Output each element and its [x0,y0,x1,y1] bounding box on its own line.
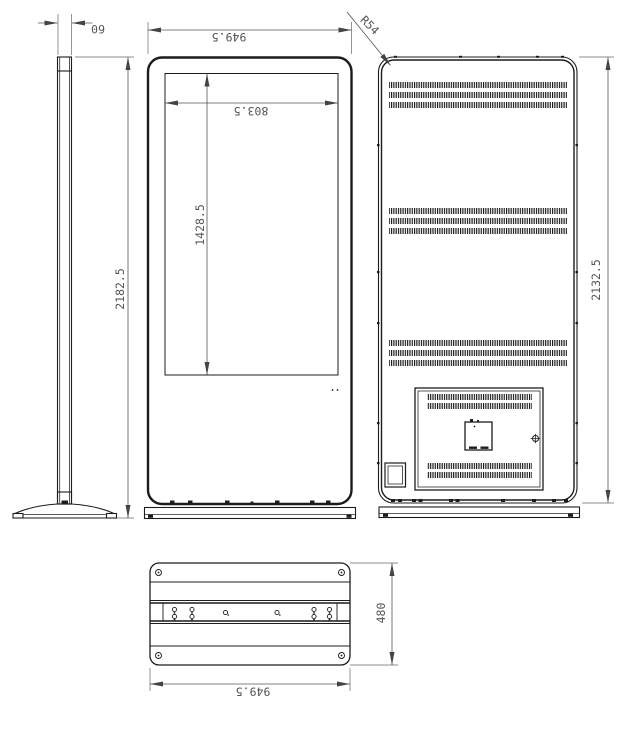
power-inlet [385,463,406,487]
dim-back-radius: R54 [347,12,391,66]
dim-screen-width-label: 803.5 [234,104,269,118]
front-base-plate [145,508,356,519]
vent-grille-top [389,82,567,108]
front-view: 949.5 803.5 1428.5 [145,22,356,519]
dim-base-width: 949.5 [150,668,350,699]
dim-base-depth: 480 [350,563,398,665]
access-panel [415,388,543,490]
channel-bolt-holes [172,607,331,620]
base-plate-lines [150,582,350,646]
sensor-dots [332,389,339,391]
back-view: R54 2132.5 [347,12,614,518]
bottom-view: 480 949.5 [150,563,398,699]
pole [58,57,72,504]
back-body-outer [379,57,578,503]
panel-junction-box [465,419,492,450]
vent-grille-lower [389,340,567,366]
dim-screen-width: 803.5 [165,103,338,118]
dim-side-height: 2182.5 [75,57,134,518]
dim-screen-height: 1428.5 [193,74,207,376]
dim-front-width-label: 949.5 [212,30,247,44]
dim-side-thickness: 60 [38,14,105,55]
dim-back-radius-label: R54 [358,13,383,38]
dim-front-width: 949.5 [148,22,352,54]
dim-side-height-label: 2182.5 [113,268,127,310]
vent-grille-middle [389,208,567,234]
technical-drawing: 60 2182.5 [0,0,618,740]
back-base-plate [379,507,580,518]
corner-mounting-holes [156,570,345,659]
back-body-inner [382,60,575,500]
dim-base-depth-label: 480 [374,603,388,624]
base-plate-outline [150,563,350,665]
dim-side-thickness-label: 60 [91,22,105,36]
side-base [13,504,117,518]
dim-back-height: 2132.5 [579,57,614,503]
lock-hole [531,434,540,443]
dim-base-width-label: 949.5 [236,685,271,699]
dim-screen-height-label: 1428.5 [193,204,207,246]
side-view: 60 2182.5 [13,14,134,518]
edge-seam-ticks [377,56,578,464]
kiosk-drawing-svg: 60 2182.5 [0,0,618,740]
dim-back-height-label: 2132.5 [589,259,603,301]
front-body [148,58,352,505]
